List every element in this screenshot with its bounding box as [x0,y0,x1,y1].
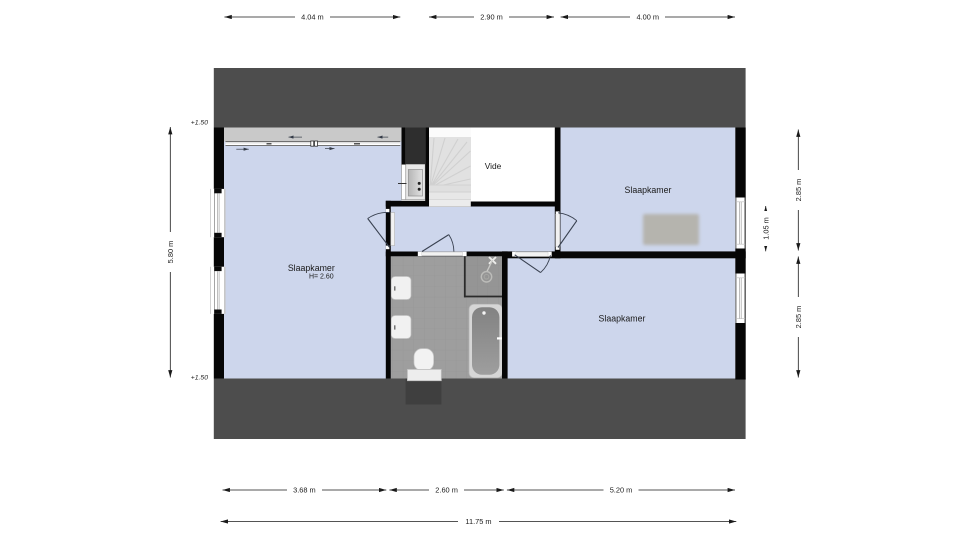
svg-text:2.85 m: 2.85 m [794,179,803,202]
svg-text:Slaapkamer: Slaapkamer [599,313,646,323]
svg-text:+1.50: +1.50 [191,375,208,382]
svg-text:11.75 m: 11.75 m [465,517,491,526]
svg-text:5.20 m: 5.20 m [610,486,633,495]
svg-text:4.00 m: 4.00 m [636,13,659,22]
svg-text:+1.50: +1.50 [191,120,208,127]
svg-text:1.05 m: 1.05 m [761,217,770,240]
svg-text:H= 2.60: H= 2.60 [309,274,334,281]
svg-text:3.68 m: 3.68 m [293,486,316,495]
svg-text:2.85 m: 2.85 m [794,306,803,329]
svg-text:5.80 m: 5.80 m [166,241,175,264]
svg-text:4.04 m: 4.04 m [301,13,324,22]
svg-text:Slaapkamer: Slaapkamer [288,263,335,273]
svg-text:2.60 m: 2.60 m [435,486,458,495]
svg-text:Slaapkamer: Slaapkamer [625,185,672,195]
svg-text:2.90 m: 2.90 m [480,13,503,22]
svg-text:Vide: Vide [485,161,502,171]
